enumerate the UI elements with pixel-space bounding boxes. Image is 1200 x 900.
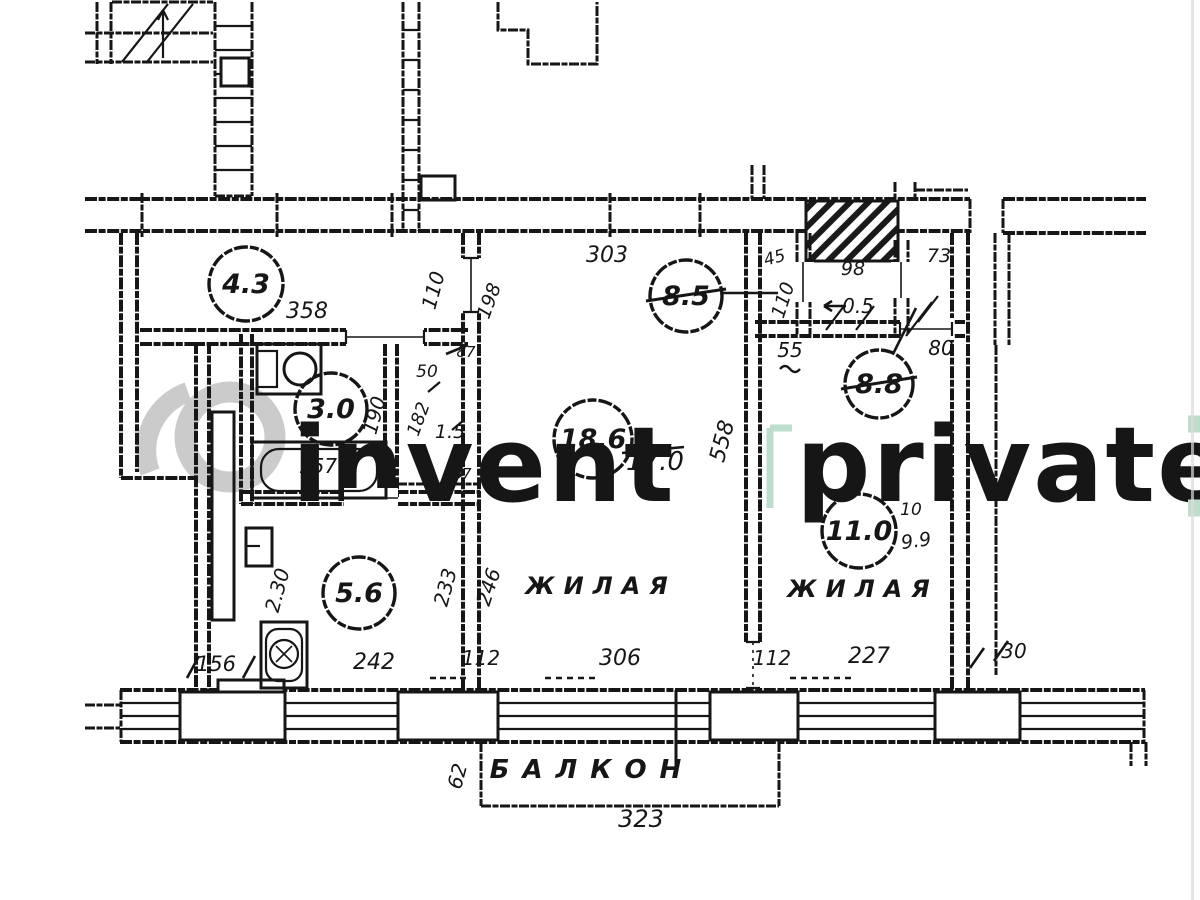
area-value: 11.0 (826, 516, 893, 547)
top-center-wall (403, 2, 597, 231)
room-label: ЖИЛАЯ (523, 572, 676, 600)
adjacent-step-wall (498, 2, 597, 64)
dimension-label: 110 (417, 269, 450, 312)
dimension-label: 10 (900, 500, 922, 520)
dimension-label: 558 (705, 418, 740, 465)
watermark-bracket-left (770, 428, 792, 508)
area-circle: 4.3 (209, 247, 283, 321)
dimension-label: 73 (927, 245, 951, 267)
dimension-label: 246 (471, 565, 506, 609)
room-label: ЖИЛАЯ (785, 575, 938, 603)
watermark-badge: private (796, 404, 1200, 526)
dimension-label: 112 (753, 646, 791, 670)
dimension-label: 0.5 (842, 294, 874, 318)
area-circle: 8.5 (646, 260, 726, 332)
dimension-label: 323 (618, 805, 664, 833)
dimension-label: 30 (1001, 639, 1026, 663)
radiator (212, 412, 234, 620)
dimension-label: 98 (841, 258, 865, 280)
bottom-wall (85, 680, 1146, 766)
dimension-label: 87 (456, 343, 476, 361)
area-value: 4.3 (221, 269, 270, 300)
dimension-label: 242 (353, 650, 395, 675)
wall-niche (221, 58, 249, 86)
dimension-label: 55 (777, 338, 802, 362)
scanned-floor-plan: invent private (0, 0, 1200, 900)
area-circle: 5.6 (323, 557, 395, 629)
area-value: 5.6 (335, 578, 383, 609)
dimension-label: 9.9 (900, 528, 933, 554)
ventilation-shaft-hatched (806, 201, 898, 261)
scan-edge (1191, 0, 1194, 900)
toilet (257, 344, 321, 394)
dimension-label: 157 (299, 454, 337, 478)
dimension-label: 358 (286, 299, 328, 324)
room-label: БАЛКОН (490, 755, 695, 785)
dimension-label: 112 (462, 646, 500, 670)
dimension-label: 50 (416, 362, 438, 382)
dimension-label: 306 (599, 646, 641, 671)
dimension-label: 80 (928, 336, 953, 360)
dimension-label: 2.30 (260, 566, 295, 615)
dimension-label: 110 (767, 280, 799, 321)
dimension-label: 156 (196, 652, 236, 676)
dimension-label: 87 (452, 465, 472, 483)
kitchen-sink (261, 622, 307, 688)
squiggle-55 (780, 366, 800, 372)
stairwell (85, 2, 252, 196)
dimension-label: 17.0 (626, 447, 684, 477)
area-value: 3.0 (307, 394, 355, 425)
dimension-label: 233 (429, 566, 462, 609)
floor-plan: invent private (0, 0, 1200, 900)
dimension-label: 1.5 (435, 421, 465, 443)
wall-cabinet (246, 528, 272, 566)
dimension-label: 45 (762, 246, 788, 271)
dimension-label: 303 (586, 243, 628, 268)
dimension-label: 62 (442, 761, 472, 792)
dimension-label: 227 (848, 644, 890, 669)
area-value: 18.6 (560, 424, 627, 455)
